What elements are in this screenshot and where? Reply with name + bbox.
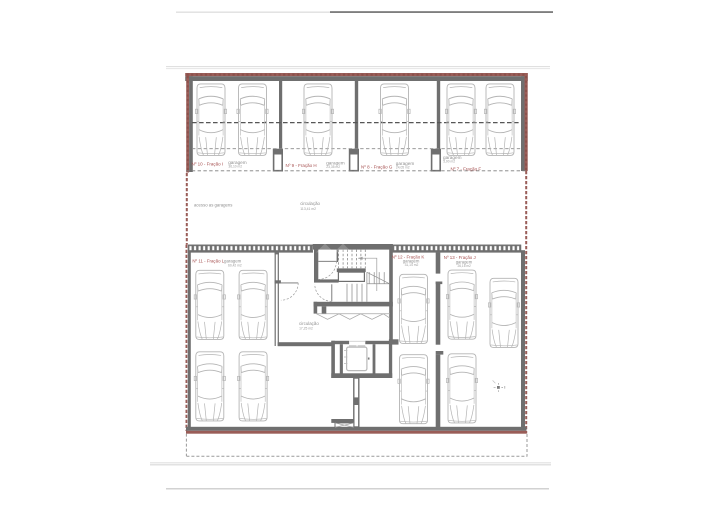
svg-text:Nº 10 - Fração I: Nº 10 - Fração I <box>192 162 224 167</box>
svg-text:60,42 m2: 60,42 m2 <box>228 264 242 268</box>
svg-text:17,25 m2: 17,25 m2 <box>299 327 313 331</box>
svg-text:acesso as garagens: acesso as garagens <box>194 202 232 207</box>
svg-text:113,41 m2: 113,41 m2 <box>300 207 316 211</box>
svg-text:circulação: circulação <box>299 321 319 326</box>
svg-text:Nº 8 - Fração G: Nº 8 - Fração G <box>361 164 393 169</box>
svg-text:Nº 11 - Fração L: Nº 11 - Fração L <box>192 258 224 263</box>
svg-text:23,35 m2: 23,35 m2 <box>326 165 340 169</box>
svg-text:Nº 7 - Fração F: Nº 7 - Fração F <box>451 166 482 171</box>
svg-text:5,00 m2: 5,00 m2 <box>443 160 455 164</box>
svg-text:31,14 m2: 31,14 m2 <box>405 263 419 267</box>
svg-text:circulação: circulação <box>300 201 320 206</box>
svg-text:24,05 m2: 24,05 m2 <box>396 166 410 170</box>
svg-text:36,10 m2: 36,10 m2 <box>228 165 242 169</box>
svg-text:26,16 m2: 26,16 m2 <box>458 264 472 268</box>
svg-text:Nº 9 - Fração H: Nº 9 - Fração H <box>286 163 317 168</box>
